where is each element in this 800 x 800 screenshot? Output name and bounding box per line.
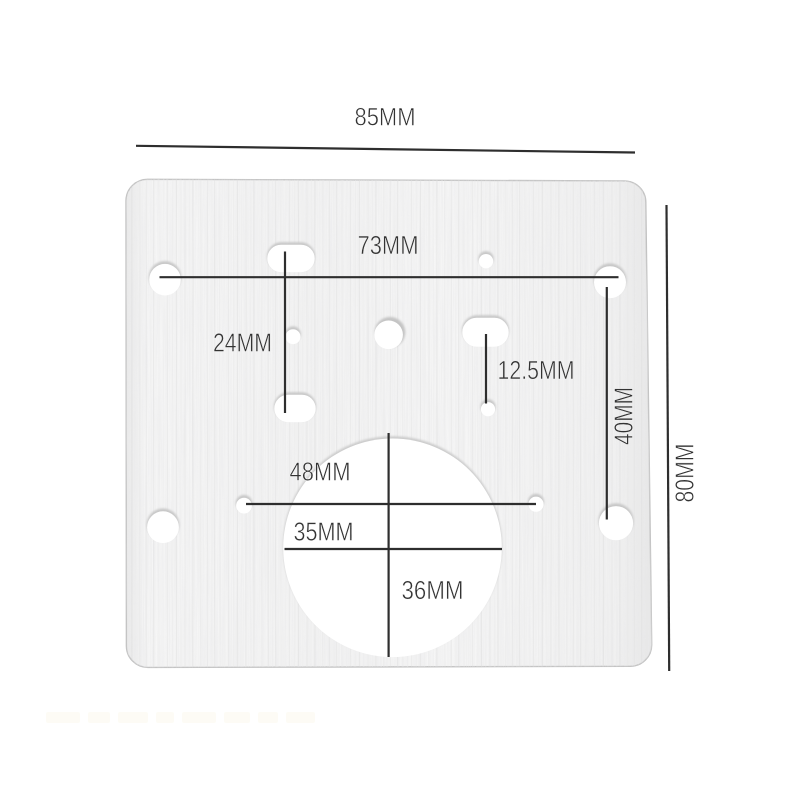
svg-text:73MM: 73MM: [358, 230, 419, 260]
svg-text:40MM: 40MM: [609, 387, 639, 445]
svg-text:85MM: 85MM: [355, 104, 416, 132]
svg-text:24MM: 24MM: [213, 328, 272, 358]
svg-text:48MM: 48MM: [290, 457, 351, 487]
svg-text:36MM: 36MM: [402, 575, 464, 605]
svg-text:80MM: 80MM: [670, 444, 700, 503]
svg-text:35MM: 35MM: [294, 517, 354, 547]
svg-text:12.5MM: 12.5MM: [498, 355, 575, 385]
